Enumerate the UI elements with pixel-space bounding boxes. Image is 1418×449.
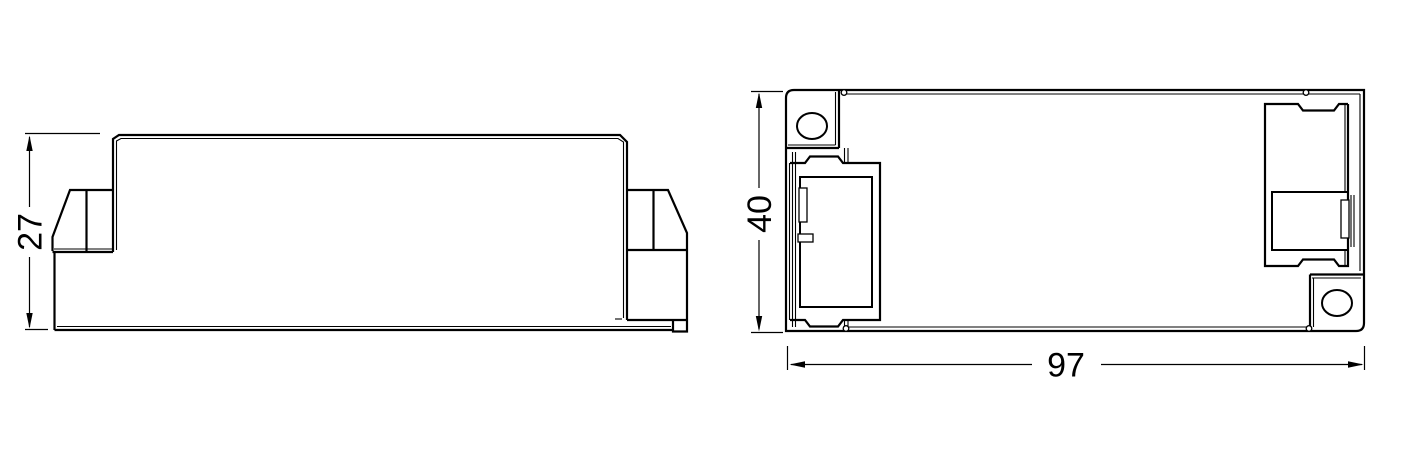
dimension-97: 97 [788,346,1365,384]
mounting-hole-bottom-right [1322,290,1352,316]
input-connector-side [53,190,114,330]
input-connector-top [790,148,880,327]
boss-dot [843,326,849,332]
dimension-40: 40 [741,92,783,333]
output-connector-outline [1265,104,1348,266]
side-view: 27 [11,134,687,332]
body-inner-lines [790,94,1361,327]
dim27-arrow-up [26,136,32,152]
input-connector-latch [799,188,807,222]
mounting-hole-top-left [797,113,827,139]
edge-boss-dots [841,90,1312,332]
input-connector-key [798,234,813,242]
boss-dot [1306,326,1312,332]
dim97-arrow-left [790,361,806,367]
output-connector-housing [1272,192,1348,250]
output-connector-side [627,190,687,332]
output-connector-top [1265,104,1354,266]
top-view: 40 97 [741,90,1365,385]
dim97-label: 97 [1047,346,1085,384]
tab-br-inner-lines [1312,278,1361,327]
tab-tl-inner-lines [788,92,836,145]
lid-inner-line [117,139,624,319]
dim40-label: 40 [741,195,779,233]
technical-drawing: 27 [0,0,1418,449]
boss-dot [841,90,847,96]
dim27-label: 27 [11,213,49,251]
output-connector-wall-lines [1345,104,1354,266]
mounting-tab-top-left [786,90,839,148]
boss-dot [1303,90,1309,96]
dim27-arrow-down [26,313,32,329]
tab-br-edges [1310,275,1364,332]
drawing-canvas: 27 [0,0,1418,449]
output-connector-latch [1341,200,1349,238]
mounting-tab-bottom-right [1310,275,1364,332]
dim97-arrow-right [1348,361,1364,367]
dim40-arrow-up [756,93,762,109]
dim40-arrow-down [756,316,762,332]
lid-outline [113,135,627,320]
